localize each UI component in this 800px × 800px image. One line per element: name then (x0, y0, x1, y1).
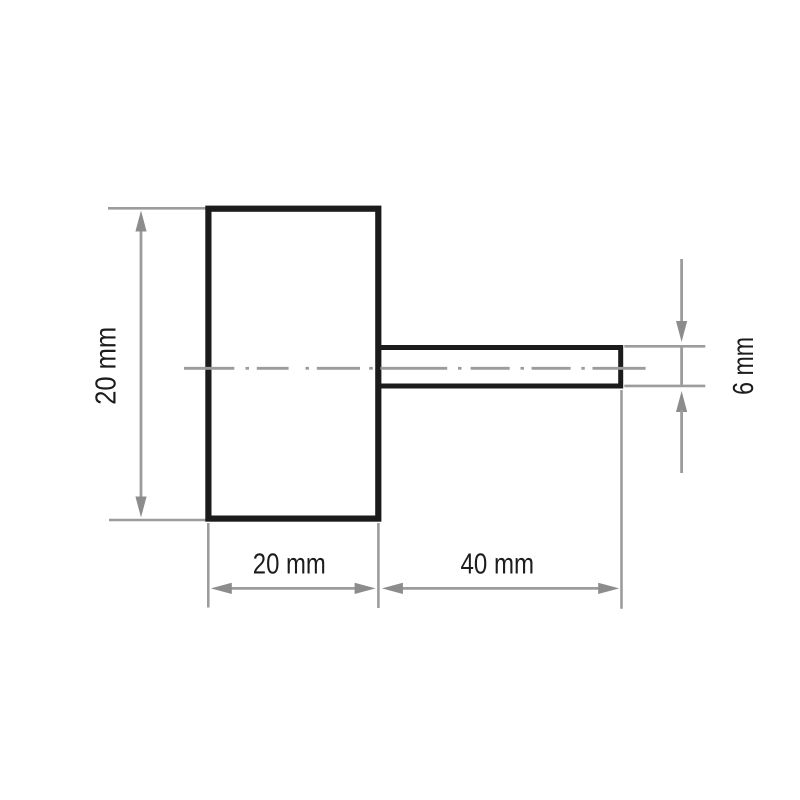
svg-text:20 mm: 20 mm (91, 327, 123, 405)
svg-text:40 mm: 40 mm (461, 548, 535, 580)
svg-text:6 mm: 6 mm (728, 337, 760, 395)
svg-text:20 mm: 20 mm (253, 548, 326, 580)
